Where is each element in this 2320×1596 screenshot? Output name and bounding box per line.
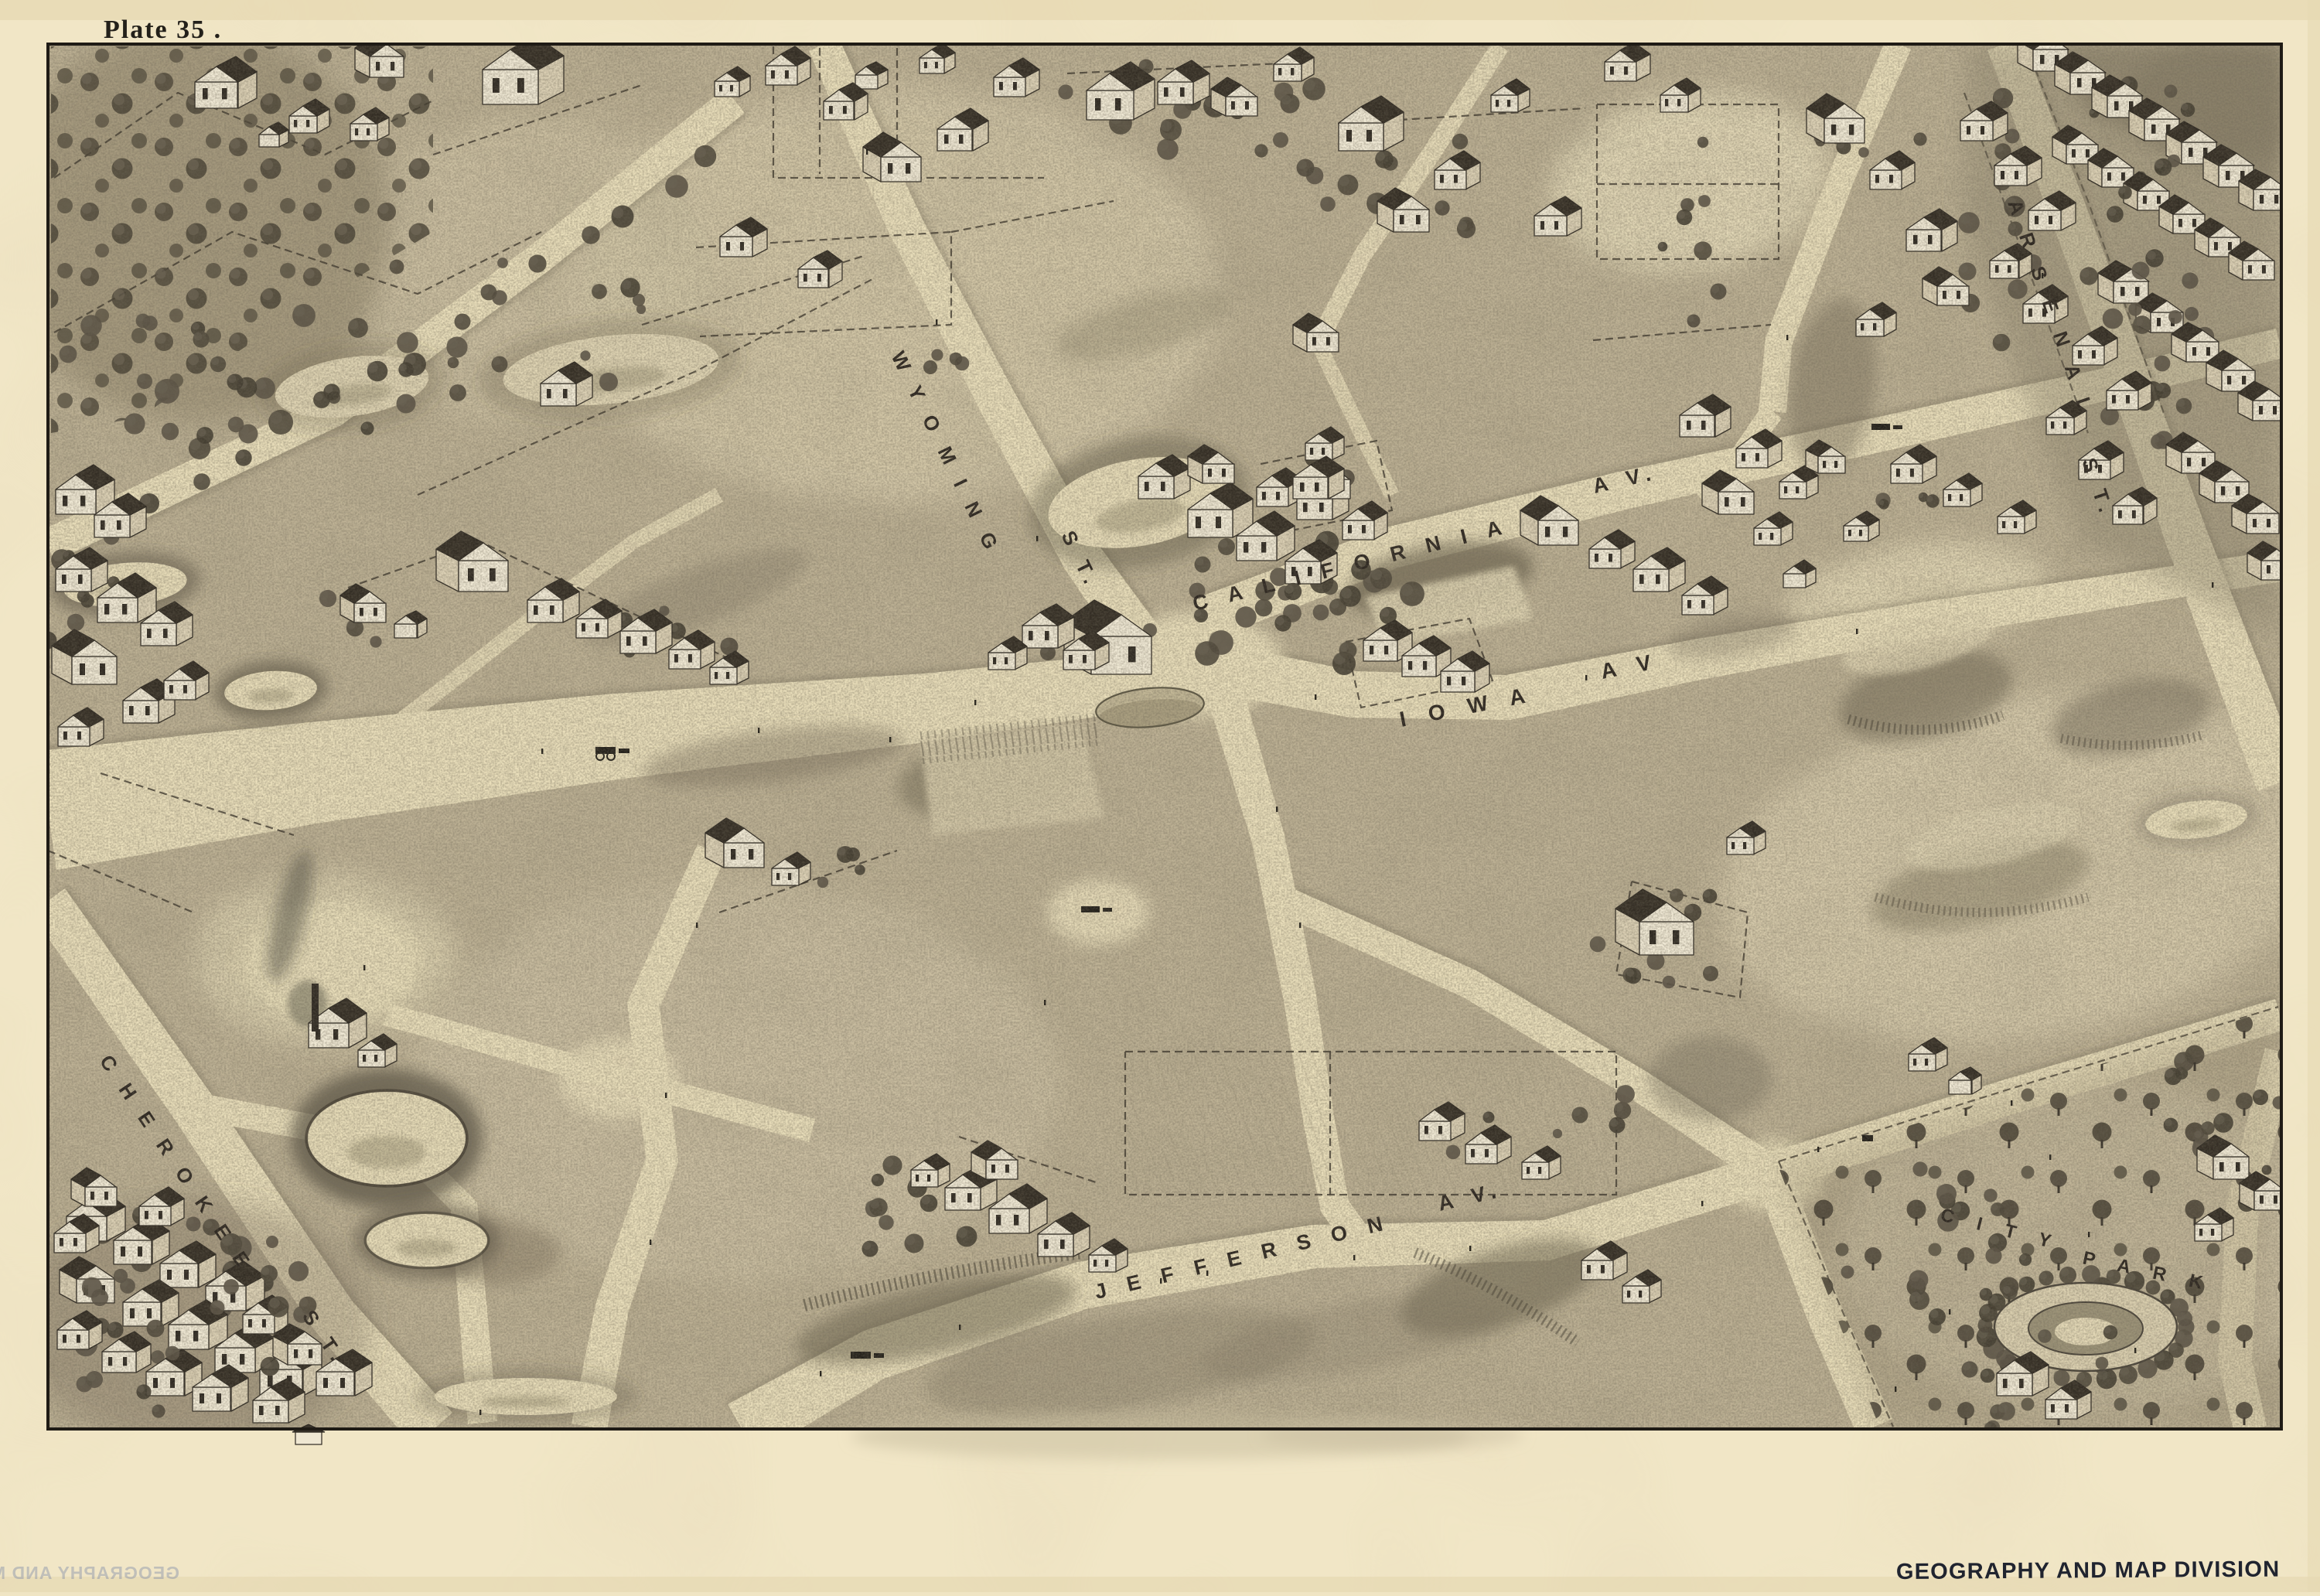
svg-text:GEOGRAPHY AND MAP D: GEOGRAPHY AND MAP D (0, 1563, 179, 1583)
svg-text:GEOGRAPHY AND MAP DIVISION: GEOGRAPHY AND MAP DIVISION (1896, 1557, 2281, 1584)
svg-text:Plate 35 .: Plate 35 . (104, 15, 222, 44)
